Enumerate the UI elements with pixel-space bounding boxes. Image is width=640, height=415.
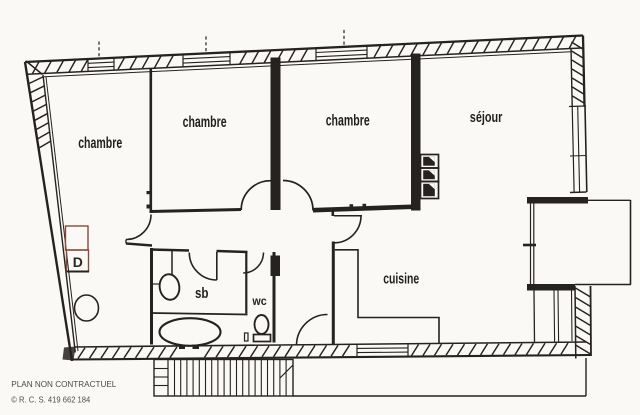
svg-text:cuisine: cuisine — [383, 271, 419, 288]
svg-text:chambre: chambre — [326, 113, 370, 130]
svg-text:wc: wc — [251, 296, 267, 308]
svg-text:chambre: chambre — [78, 135, 122, 152]
svg-text:© R. C. S. 419 662 184: © R. C. S. 419 662 184 — [11, 396, 90, 405]
svg-text:sb: sb — [195, 285, 209, 302]
svg-text:séjour: séjour — [470, 109, 503, 126]
svg-text:chambre: chambre — [183, 114, 227, 131]
svg-text:D: D — [73, 254, 83, 270]
svg-text:PLAN NON CONTRACTUEL: PLAN NON CONTRACTUEL — [11, 379, 116, 389]
